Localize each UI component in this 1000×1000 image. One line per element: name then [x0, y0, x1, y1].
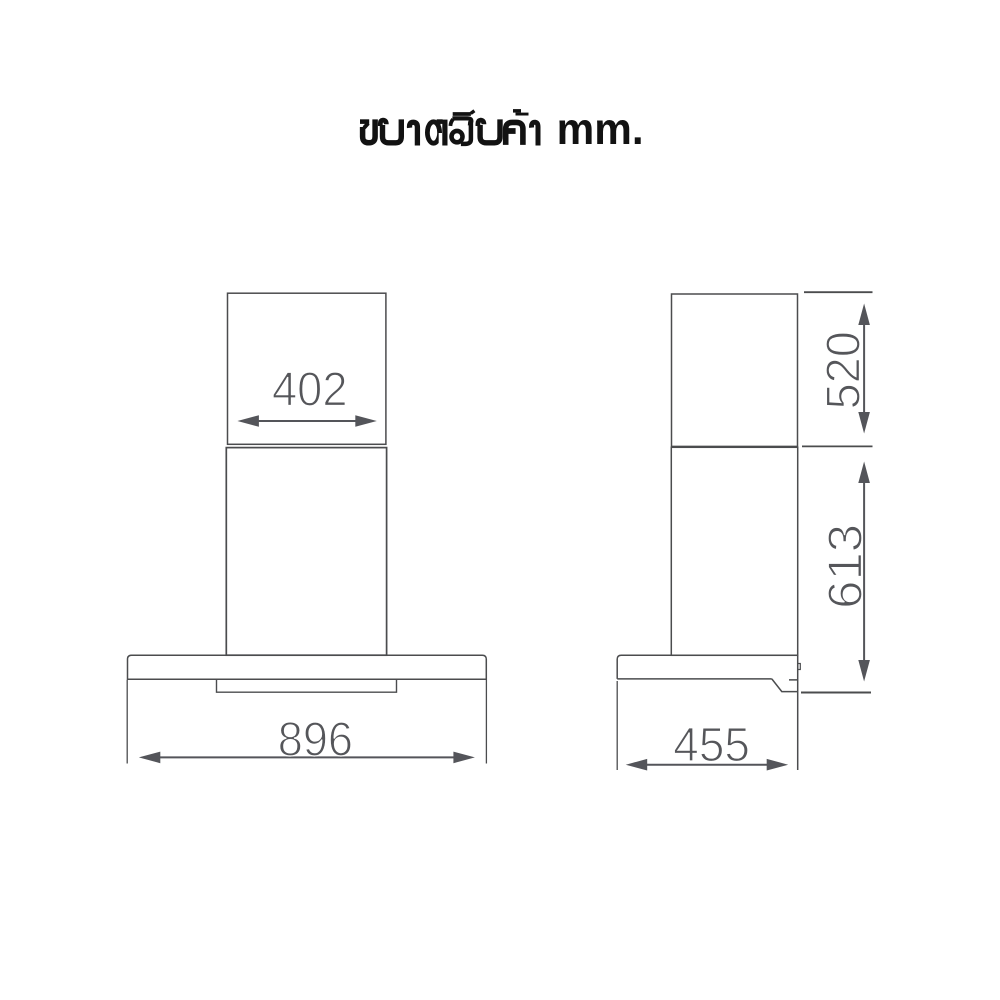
svg-text:mm.: mm.: [557, 105, 644, 154]
svg-text:455: 455: [673, 719, 750, 772]
svg-text:613: 613: [820, 524, 873, 609]
svg-text:896: 896: [278, 714, 353, 767]
svg-text:520: 520: [818, 331, 871, 409]
svg-text:402: 402: [272, 364, 348, 417]
